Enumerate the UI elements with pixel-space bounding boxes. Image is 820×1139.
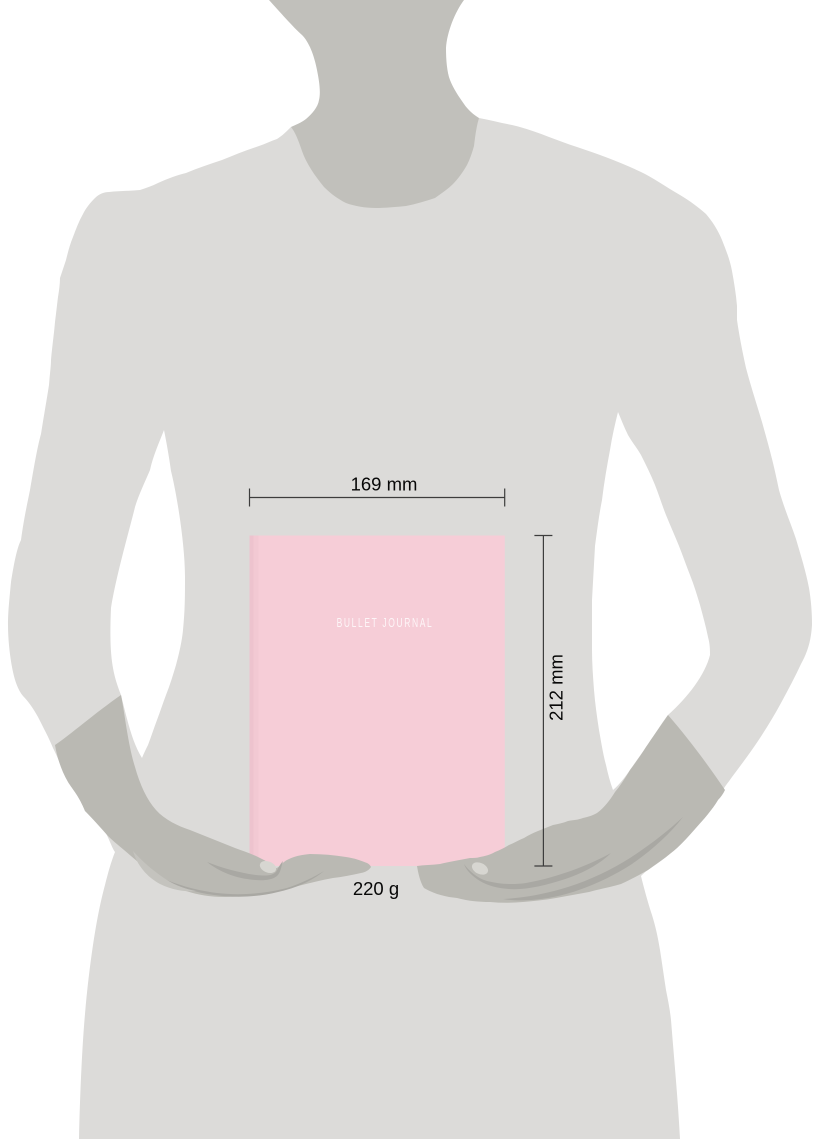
svg-text:212 mm: 212 mm bbox=[546, 654, 567, 721]
svg-text:169 mm: 169 mm bbox=[351, 474, 418, 495]
svg-text:BULLET JOURNAL: BULLET JOURNAL bbox=[337, 616, 434, 630]
svg-text:220 g: 220 g bbox=[353, 878, 399, 899]
